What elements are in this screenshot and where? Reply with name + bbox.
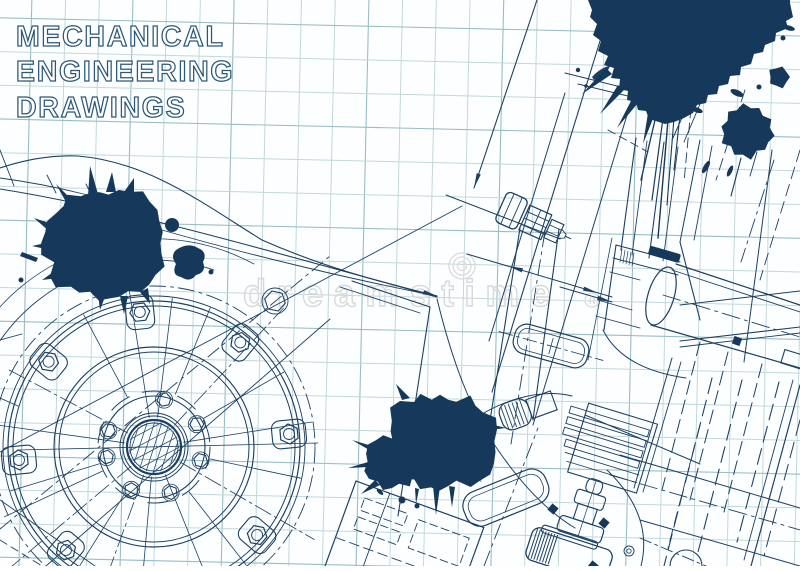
svg-text:MECHANICAL: MECHANICAL: [16, 21, 225, 53]
svg-text:dreamstime: dreamstime: [243, 273, 561, 315]
svg-text:DRAWINGS: DRAWINGS: [16, 92, 186, 124]
svg-text:ENGINEERING: ENGINEERING: [16, 56, 234, 88]
